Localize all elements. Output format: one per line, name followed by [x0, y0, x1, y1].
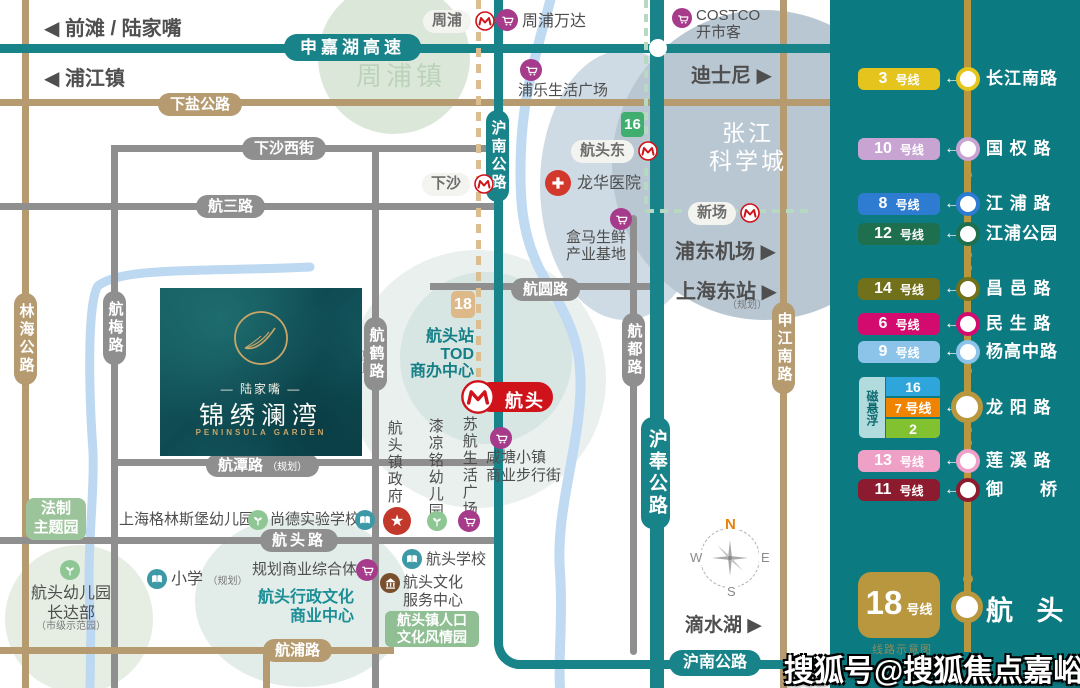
road-label-hunan-bottom: 沪南公路 — [669, 650, 761, 676]
nav-pudong-airport: 浦东机场 ▶ — [675, 235, 776, 264]
sprout-icon — [427, 511, 447, 531]
poi-zhoupu-wanda: 周浦万达 — [522, 12, 586, 31]
line18-badge: 18号线 — [858, 572, 940, 638]
metro-logo-icon — [475, 11, 495, 31]
station-circle — [956, 67, 980, 91]
metro-row-line9: 9号线 ← 杨高中路 — [830, 341, 1080, 363]
poi-pule-plaza: 浦乐生活广场 — [518, 82, 608, 100]
poi-costco: COSTCO 开市客 — [696, 7, 760, 42]
station-zhoupu: 周浦 — [423, 10, 495, 33]
nav-disney: 迪士尼 ▶ — [691, 59, 772, 88]
nav-shanghai-east-note: （规划） — [727, 300, 767, 312]
property-card: — 陆家嘴 — 锦绣澜湾 PENINSULA GARDEN — [160, 288, 362, 456]
property-brand: — 陆家嘴 — — [160, 380, 362, 397]
metro-row-line11: 11号线 ← 御 桥 — [830, 479, 1080, 501]
station-circle — [956, 312, 980, 336]
station-hangtou-highlight: 航头 — [461, 380, 553, 414]
poi-fazhi-theme-park: 法制 主题园 — [26, 498, 86, 540]
sprout-icon — [248, 510, 268, 530]
road-label-hanghe: 航鹤路 — [364, 317, 387, 391]
compass-s: S — [725, 584, 738, 599]
sprout-icon — [60, 560, 80, 580]
line-badge: 3号线 — [858, 68, 940, 90]
book-icon — [402, 549, 422, 569]
station-name: 航 头 — [986, 589, 1072, 628]
property-logo-icon — [233, 310, 289, 366]
metro-row-line8: 8号线 ← 江 浦 路 — [830, 193, 1080, 215]
shopping-cart-icon — [458, 510, 480, 532]
line-badge: 13号线 — [858, 450, 940, 472]
road-hunan-vertical — [494, 0, 503, 645]
road-label-hufeng: 沪奉公路 — [641, 417, 670, 529]
nav-pujiang-town: ◀ 浦江镇 — [44, 62, 125, 91]
watermark: 搜狐号@搜狐焦点嘉峪关站 — [784, 646, 1080, 688]
nav-qiantan-lujiazui: ◀ 前滩 / 陆家嘴 — [44, 12, 182, 41]
line-badge: 12号线 — [858, 223, 940, 245]
station-name: 长江南路 — [986, 68, 1058, 90]
station-circle — [951, 591, 983, 623]
property-name-en: PENINSULA GARDEN — [160, 428, 362, 437]
poi-hema-base: 盒马生鲜 产业基地 — [566, 229, 626, 264]
area-label-zhangjiang: 张江 科学城 — [698, 120, 798, 175]
compass-w: W — [688, 550, 704, 565]
station-xinchang: 新场 — [688, 202, 760, 225]
road-label-xiasha-west: 下沙西街 — [242, 137, 326, 160]
poi-hangtou-school: 航头学校 — [426, 551, 486, 569]
line7-cell: 7 号线 — [886, 398, 940, 417]
station-name: 莲 溪 路 — [986, 450, 1051, 472]
highway-junction-dot — [649, 39, 667, 57]
poi-hangtou-kindergarten: 航头幼儿园 长达部 — [24, 584, 118, 624]
station-circle — [956, 277, 980, 301]
metro-row-line12: 12号线 ← 江浦公园 — [830, 223, 1080, 245]
road-xiayan — [0, 99, 830, 106]
road-label-xiayan: 下盐公路 — [158, 93, 242, 116]
property-name: 锦绣澜湾 — [160, 396, 362, 432]
line-badge: 9号线 — [858, 341, 940, 363]
shopping-cart-icon — [496, 9, 518, 31]
road-label-shenjiang-south: 申江南路 — [772, 302, 795, 394]
road-label-hangdu: 航都路 — [622, 313, 645, 387]
metro-line16-vertical — [644, 0, 648, 212]
station-circle — [951, 391, 983, 423]
road-hangpu — [0, 647, 394, 654]
poi-suhang-plaza: 苏航生活广场 — [461, 416, 477, 518]
poi-shangde-school: 尚德实验学校 — [270, 511, 360, 529]
book-icon — [147, 569, 167, 589]
road-label-hangmei: 航梅路 — [103, 291, 126, 365]
station-xiasha: 下沙 — [422, 173, 494, 196]
metro-row-longyang: 磁悬浮 16 7 号线 2 ← 龙 阳 路 — [830, 377, 1080, 439]
metro-logo-icon — [638, 141, 658, 161]
line18-badge-map: 18 — [451, 291, 475, 318]
station-name: 昌 邑 路 — [986, 278, 1051, 300]
nav-dishui-lake: 滴水湖 ▶ — [685, 610, 762, 637]
station-name: 江浦公园 — [986, 223, 1058, 245]
line-badge: 11号线 — [858, 479, 940, 501]
metro-lines-panel: 3号线 ← 长江南路 10号线 ← 国 权 路 8号线 ← 江 浦 路 12号线… — [830, 0, 1080, 688]
road-label-linhai: 林海公路 — [14, 293, 37, 385]
road-label-hangtan: 航潭路 （规划） — [206, 454, 319, 477]
road-label-hangtou: 航头路 — [260, 529, 338, 552]
line-badge: 14号线 — [858, 278, 940, 300]
station-name: 国 权 路 — [986, 138, 1051, 160]
shopping-cart-icon — [610, 208, 632, 230]
road-label-hangpu: 航浦路 — [263, 639, 332, 662]
poi-greensburg-kindergarten: 上海格林斯堡幼儿园 — [119, 511, 254, 529]
station-name: 杨高中路 — [986, 341, 1058, 363]
metro-row-line6: 6号线 ← 民 生 路 — [830, 313, 1080, 335]
metro-line18-planned — [476, 0, 481, 398]
station-circle — [956, 478, 980, 502]
poi-town-government: 航头镇政府 — [386, 420, 402, 505]
poi-culture-park: 航头镇人口 文化风情园 — [385, 611, 479, 647]
metro-logo-icon — [474, 174, 494, 194]
maglev-cell: 磁悬浮 — [859, 377, 885, 438]
book-icon — [355, 510, 375, 530]
metro-logo-icon — [740, 203, 760, 223]
metro-logo-icon — [461, 380, 495, 414]
station-circle — [956, 340, 980, 364]
poi-hangtou-kindergarten-note: （市级示范园） — [36, 621, 106, 633]
road-label-hangyuan: 航圆路 — [511, 278, 580, 301]
poi-longhua-hospital: 龙华医院 — [577, 174, 641, 193]
metro-row-line10: 10号线 ← 国 权 路 — [830, 138, 1080, 160]
line16-cell: 16 — [886, 377, 940, 396]
shopping-cart-icon — [672, 8, 692, 28]
station-hangtou-east: 航头东 — [571, 140, 658, 163]
poi-primary-school: 小学 （规划） — [171, 570, 247, 589]
poi-planned-complex: 规划商业综合体 — [252, 561, 357, 579]
station-circle — [956, 192, 980, 216]
area-label-zhoupu-town: 周浦镇 — [356, 56, 446, 93]
station-circle — [956, 449, 980, 473]
line2-cell: 2 — [886, 419, 940, 438]
station-name: 御 桥 — [986, 479, 1058, 501]
station-name: 江 浦 路 — [986, 193, 1051, 215]
station-name: 龙 阳 路 — [986, 397, 1051, 419]
shopping-cart-icon — [520, 59, 542, 81]
line16-badge: 16 — [621, 112, 644, 137]
station-circle — [956, 222, 980, 246]
poi-culture-center: 航头文化 服务中心 — [403, 574, 463, 610]
road-hufeng — [650, 0, 664, 688]
poi-xiantang: 咸塘小镇 商业步行街 — [486, 449, 561, 485]
metro-row-line18-terminus: 18号线 航 头 — [830, 572, 1080, 640]
shopping-cart-icon — [356, 559, 378, 581]
metro-row-line3: 3号线 ← 长江南路 — [830, 68, 1080, 90]
road-hangdu — [630, 215, 637, 655]
metro-row-line14: 14号线 ← 昌 邑 路 — [830, 278, 1080, 300]
poi-admin-center: 航头行政文化 商业中心 — [248, 588, 354, 626]
compass-n: N — [723, 516, 738, 533]
shopping-cart-icon — [490, 427, 512, 449]
road-hanghe — [372, 145, 379, 688]
bank-building-icon — [380, 573, 400, 593]
station-circle — [956, 137, 980, 161]
station-name: 民 生 路 — [986, 313, 1051, 335]
compass: N W E S — [692, 520, 768, 596]
road-label-hangsan: 航三路 — [196, 195, 265, 218]
line-badge: 10号线 — [858, 138, 940, 160]
line-badge: 8号线 — [858, 193, 940, 215]
compass-e: E — [759, 550, 772, 565]
line-badge: 6号线 — [858, 313, 940, 335]
metro-row-line13: 13号线 ← 莲 溪 路 — [830, 450, 1080, 472]
hospital-cross-icon — [545, 170, 571, 196]
poi-tod-center: 航头站 TOD 商办中心 — [404, 328, 474, 381]
star-icon: ★ — [383, 507, 411, 535]
location-map-page: 申嘉湖高速 下盐公路 下沙西街 航三路 航圆路 航潭路 （规划） 航头路 航浦路… — [0, 0, 1080, 688]
poi-qiliangming-kindergarten: 漆凉铭幼儿园 — [427, 418, 443, 520]
